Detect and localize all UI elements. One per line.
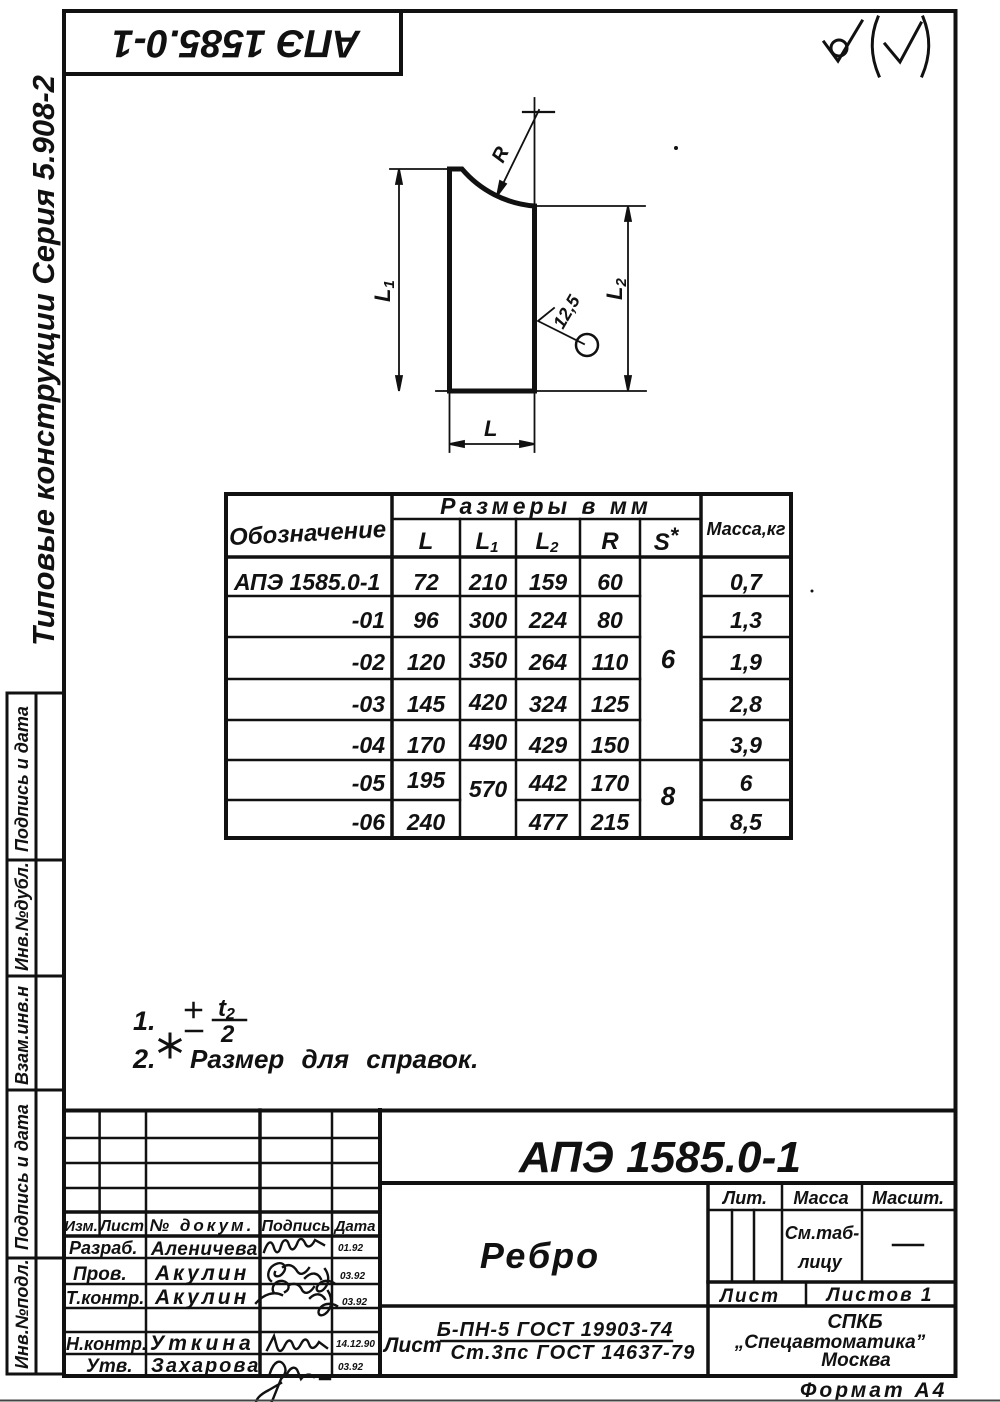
svg-text:80: 80 (597, 607, 623, 633)
svg-text:L2: L2 (535, 528, 559, 556)
svg-text:АПЭ 1585.0-1: АПЭ 1585.0-1 (233, 569, 380, 595)
svg-text:-06: -06 (352, 809, 385, 835)
svg-text:Размеры в мм: Размеры в мм (440, 493, 652, 519)
svg-text:170: 170 (407, 732, 446, 758)
svg-text:01.92: 01.92 (338, 1243, 363, 1254)
svg-text:Формат А4: Формат А4 (800, 1379, 947, 1402)
svg-text:159: 159 (529, 569, 568, 595)
svg-text:1.: 1. (133, 1006, 156, 1036)
svg-text:210: 210 (468, 569, 508, 595)
svg-text:Уткина: Уткина (150, 1332, 255, 1355)
svg-text:СПКБ: СПКБ (827, 1311, 882, 1333)
svg-text:96: 96 (413, 607, 439, 633)
svg-text:6: 6 (740, 770, 753, 796)
svg-text:03.92: 03.92 (340, 1271, 365, 1282)
svg-text:L2: L2 (602, 278, 630, 300)
svg-text:Масса: Масса (793, 1188, 848, 1208)
svg-text:-02: -02 (352, 649, 385, 675)
svg-text:442: 442 (528, 770, 568, 796)
svg-text:6: 6 (661, 644, 676, 674)
svg-text:Размер для справок.: Размер для справок. (190, 1044, 478, 1074)
svg-text:1,9: 1,9 (730, 649, 762, 675)
svg-text:S*: S* (654, 523, 680, 556)
svg-text:Инв.№подл.: Инв.№подл. (12, 1259, 32, 1369)
svg-text:8: 8 (661, 781, 676, 811)
svg-text:Масшт.: Масшт. (872, 1188, 944, 1208)
svg-text:Акулин: Акулин (154, 1286, 249, 1309)
svg-text:Ст.3пс ГОСТ 14637-79: Ст.3пс ГОСТ 14637-79 (450, 1342, 695, 1364)
svg-text:R: R (488, 143, 514, 166)
svg-text:Утв.: Утв. (86, 1356, 133, 1377)
svg-text:Подпись: Подпись (261, 1218, 330, 1235)
svg-text:L1: L1 (370, 280, 398, 302)
svg-text:2.: 2. (132, 1044, 156, 1074)
svg-text:1,3: 1,3 (730, 607, 762, 633)
svg-text:АПЭ 1585.0-1: АПЭ 1585.0-1 (112, 22, 361, 65)
svg-text:Б-ПН-5 ГОСТ 19903-74: Б-ПН-5 ГОСТ 19903-74 (437, 1319, 674, 1341)
svg-text:лицу: лицу (797, 1252, 843, 1272)
svg-text:60: 60 (597, 569, 623, 595)
svg-text:477: 477 (528, 809, 569, 835)
svg-text:120: 120 (407, 649, 446, 675)
svg-text:Аленичева: Аленичева (150, 1239, 258, 1260)
svg-text:03.92: 03.92 (338, 1362, 363, 1373)
svg-text:-03: -03 (352, 691, 385, 717)
svg-text:№ докум.: № докум. (150, 1216, 255, 1235)
svg-text:Пров.: Пров. (73, 1264, 127, 1285)
svg-text:350: 350 (469, 647, 508, 673)
svg-text:240: 240 (406, 809, 446, 835)
svg-text:-04: -04 (352, 732, 385, 758)
svg-text:АПЭ 1585.0-1: АПЭ 1585.0-1 (518, 1133, 801, 1182)
svg-text:0,7: 0,7 (730, 569, 763, 595)
svg-text:Подпись и дата: Подпись и дата (12, 1104, 32, 1250)
svg-text:Т.контр.: Т.контр. (66, 1288, 144, 1308)
svg-text:Подпись и дата: Подпись и дата (12, 706, 32, 852)
svg-text:03.92: 03.92 (342, 1297, 367, 1308)
svg-text:324: 324 (529, 691, 568, 717)
svg-text:Н.контр.: Н.контр. (66, 1334, 147, 1354)
svg-text:429: 429 (528, 732, 568, 758)
svg-text:145: 145 (407, 691, 447, 717)
svg-text:72: 72 (413, 569, 439, 595)
svg-text:Захарова: Захарова (151, 1355, 260, 1377)
svg-text:L1: L1 (475, 528, 498, 556)
svg-text:Ребро: Ребро (480, 1235, 600, 1276)
svg-text:Акулин: Акулин (154, 1262, 249, 1285)
svg-text:12,5: 12,5 (549, 291, 584, 332)
svg-text:150: 150 (591, 732, 630, 758)
svg-text:Разраб.: Разраб. (69, 1238, 137, 1258)
svg-text:Обозначение: Обозначение (228, 516, 386, 551)
svg-text:Москва: Москва (821, 1350, 891, 1371)
svg-text:8,5: 8,5 (730, 809, 763, 835)
svg-text:490: 490 (468, 729, 508, 755)
svg-text:Взам.инв.н: Взам.инв.н (12, 986, 32, 1085)
svg-text:Дата: Дата (333, 1218, 376, 1235)
svg-text:300: 300 (469, 607, 508, 633)
svg-text:125: 125 (591, 691, 631, 717)
svg-text:2,8: 2,8 (729, 691, 762, 717)
svg-text:570: 570 (469, 776, 508, 802)
svg-text:L: L (484, 416, 497, 441)
svg-text:Лист: Лист (718, 1286, 780, 1307)
svg-text:t2: t2 (218, 995, 235, 1023)
svg-text:-05: -05 (352, 770, 386, 796)
svg-text:264: 264 (528, 649, 568, 675)
svg-text:L: L (419, 528, 434, 555)
svg-text:Лит.: Лит. (721, 1188, 767, 1208)
svg-text:3,9: 3,9 (730, 732, 762, 758)
svg-text:224: 224 (528, 607, 568, 633)
svg-text:Масса,кг: Масса,кг (707, 519, 786, 539)
svg-text:14.12.90: 14.12.90 (336, 1339, 375, 1350)
svg-text:Листов 1: Листов 1 (825, 1285, 934, 1306)
svg-text:215: 215 (590, 809, 631, 835)
svg-text:R: R (601, 528, 619, 555)
svg-text:Лист: Лист (99, 1218, 144, 1235)
svg-text:Инв.№дубл.: Инв.№дубл. (12, 862, 32, 971)
svg-text:110: 110 (592, 649, 629, 675)
svg-text:Лист: Лист (382, 1334, 442, 1357)
svg-text:См.таб-: См.таб- (785, 1223, 859, 1243)
svg-text:Типовые конструкции Серия 5.9: Типовые конструкции Серия 5.908-2 (26, 75, 61, 646)
svg-text:Изм.: Изм. (64, 1218, 98, 1235)
svg-text:195: 195 (407, 767, 447, 793)
svg-text:-01: -01 (352, 607, 385, 633)
svg-text:170: 170 (591, 770, 630, 796)
svg-text:420: 420 (468, 689, 508, 715)
